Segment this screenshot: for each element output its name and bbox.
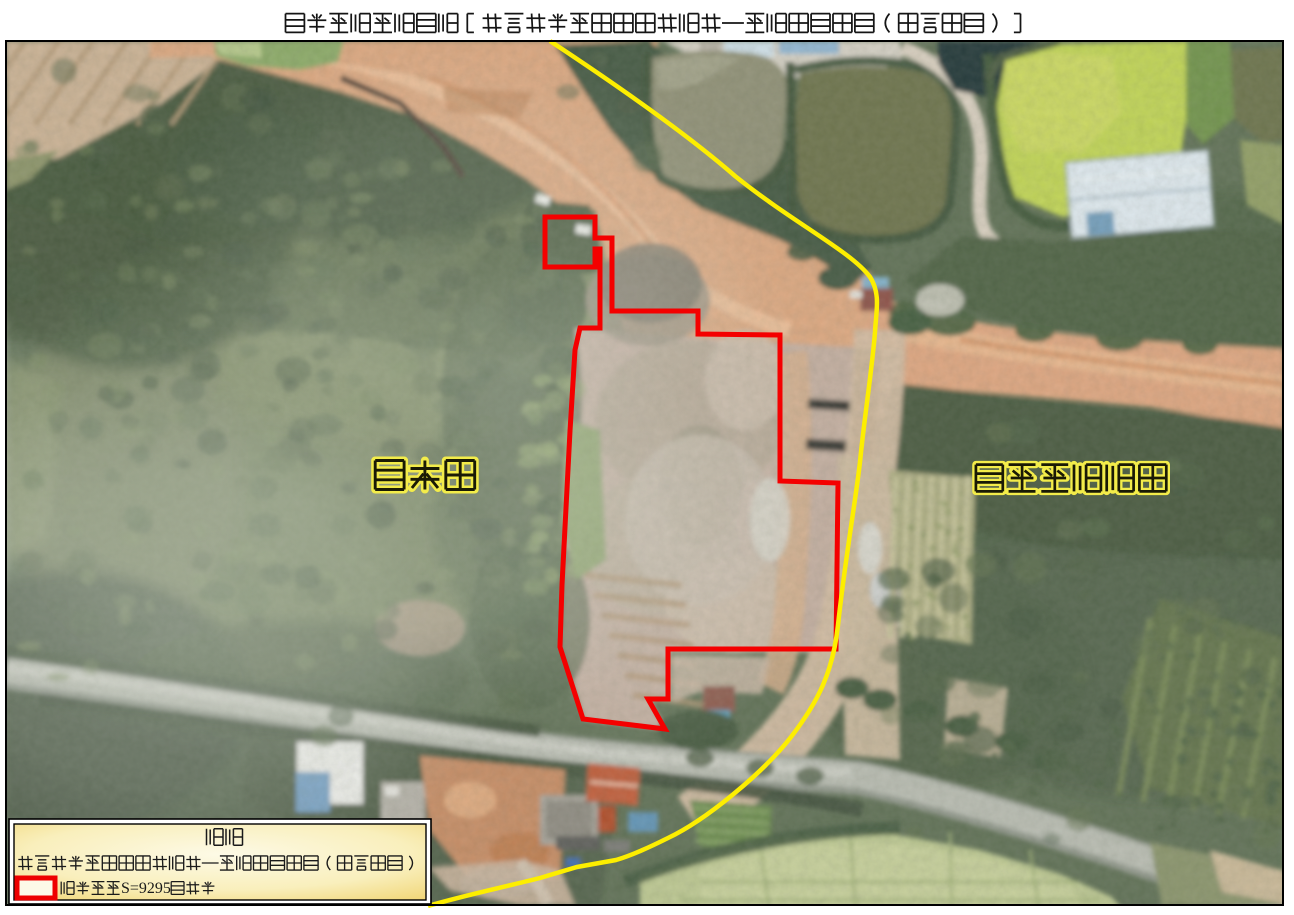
svg-text:S=9295: S=9295 (121, 880, 171, 897)
